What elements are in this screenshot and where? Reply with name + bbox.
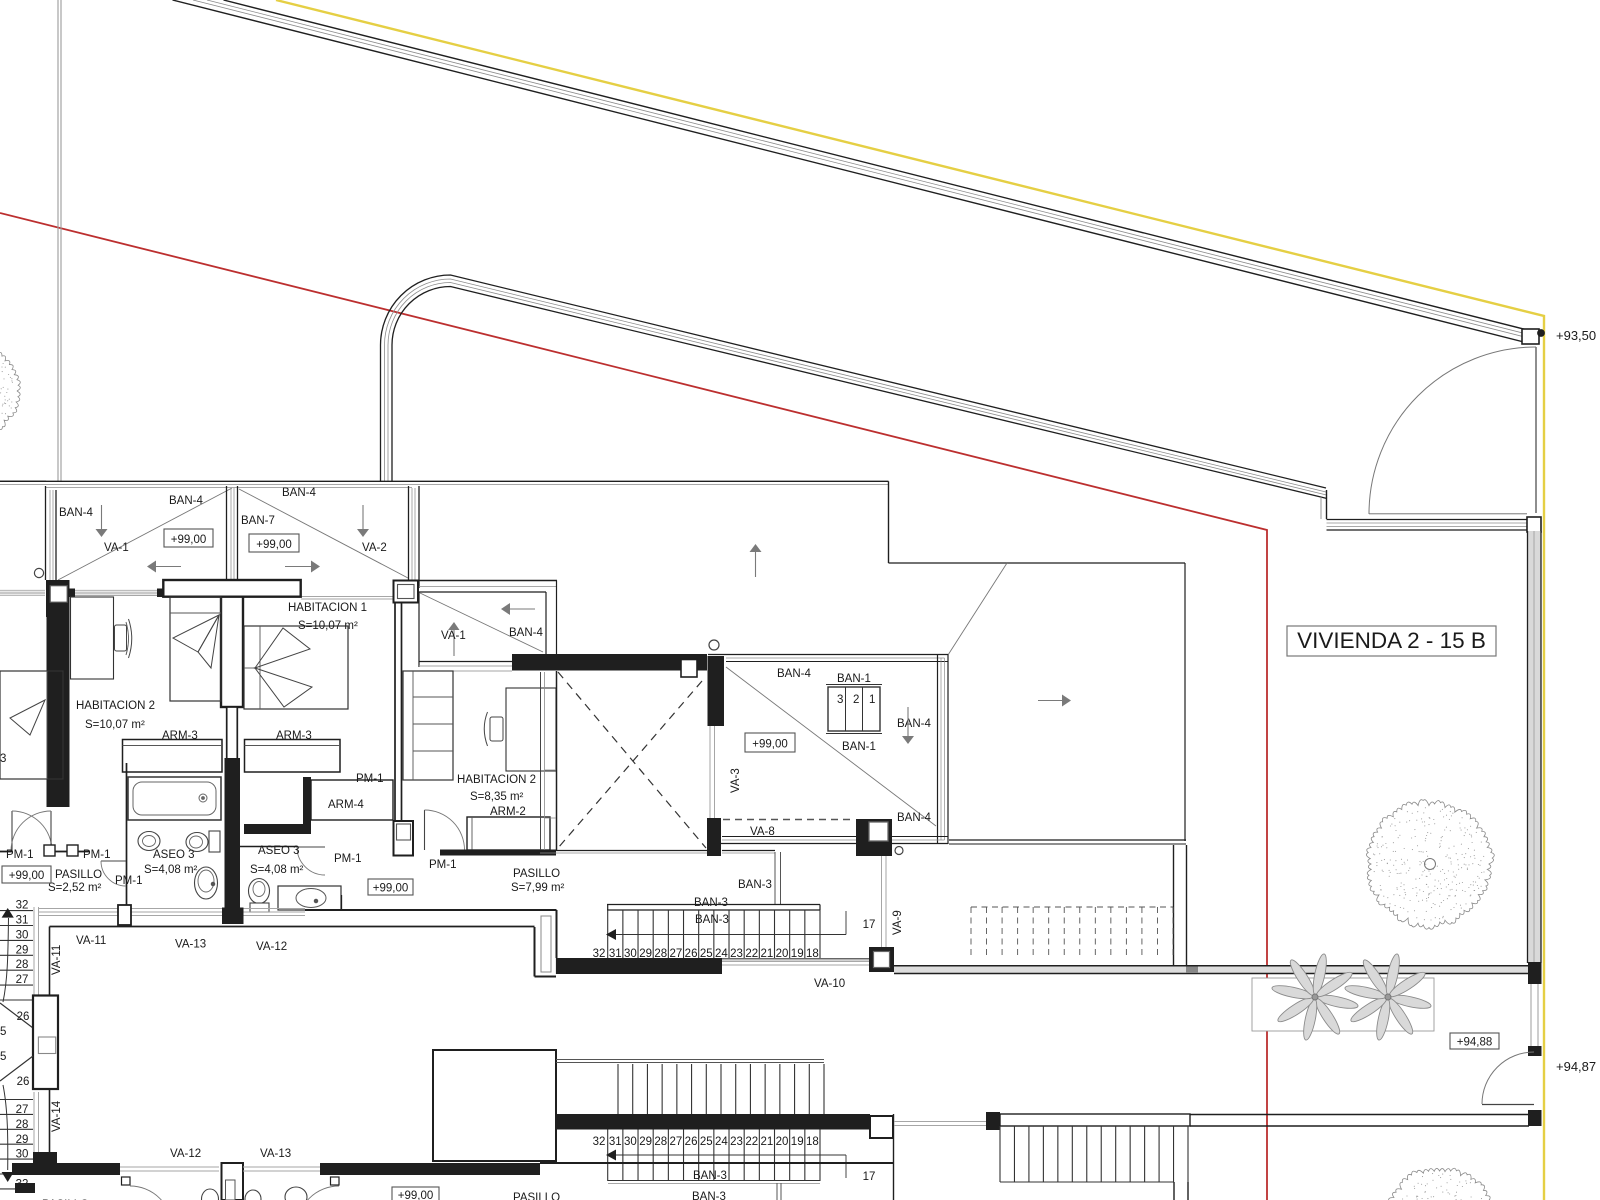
svg-text:BAN-7: BAN-7: [241, 515, 275, 527]
svg-text:5: 5: [0, 1026, 6, 1038]
svg-text:+93,50: +93,50: [1556, 328, 1596, 343]
svg-text:19: 19: [791, 948, 804, 960]
svg-text:28: 28: [654, 1136, 667, 1148]
svg-text:BAN-4: BAN-4: [897, 812, 931, 824]
svg-text:22: 22: [745, 1136, 758, 1148]
svg-text:19: 19: [791, 1136, 804, 1148]
svg-text:17: 17: [863, 919, 876, 931]
svg-text:29: 29: [16, 1134, 29, 1146]
svg-text:VIVIENDA 2 - 15 B: VIVIENDA 2 - 15 B: [1297, 628, 1486, 653]
svg-text:17: 17: [863, 1171, 876, 1183]
svg-text:PM-1: PM-1: [334, 853, 361, 865]
svg-text:VA-14: VA-14: [51, 1100, 63, 1132]
svg-text:18: 18: [806, 1136, 819, 1148]
svg-text:+99,00: +99,00: [373, 883, 409, 895]
svg-text:ARM-3: ARM-3: [162, 730, 198, 742]
svg-text:20: 20: [776, 1136, 789, 1148]
svg-text:S=4,08 m²: S=4,08 m²: [250, 864, 304, 876]
svg-text:BAN-4: BAN-4: [897, 718, 931, 730]
svg-text:27: 27: [670, 1136, 683, 1148]
svg-text:25: 25: [700, 1136, 713, 1148]
svg-text:BAN-4: BAN-4: [777, 668, 811, 680]
svg-text:BAN-3: BAN-3: [694, 897, 728, 909]
svg-text:+99,00: +99,00: [256, 539, 292, 551]
svg-text:BAN-1: BAN-1: [837, 673, 871, 685]
svg-text:29: 29: [16, 944, 29, 956]
svg-text:ARM-2: ARM-2: [490, 806, 526, 818]
svg-text:28: 28: [16, 959, 29, 971]
svg-text:PM-1: PM-1: [429, 859, 456, 871]
svg-text:VA-10: VA-10: [814, 978, 845, 990]
svg-text:20: 20: [776, 948, 789, 960]
svg-text:32: 32: [16, 900, 29, 912]
svg-text:PM-1: PM-1: [6, 849, 33, 861]
svg-text:VA-12: VA-12: [170, 1148, 201, 1160]
svg-text:23: 23: [730, 1136, 743, 1148]
svg-text:32: 32: [593, 1136, 606, 1148]
svg-text:30: 30: [16, 1149, 29, 1161]
svg-text:VA-11: VA-11: [76, 935, 106, 947]
svg-text:VA-8: VA-8: [750, 826, 775, 838]
svg-text:VA-13: VA-13: [260, 1148, 291, 1160]
svg-text:PASILLO: PASILLO: [55, 869, 102, 881]
svg-text:27: 27: [16, 1104, 29, 1116]
svg-text:+99,00: +99,00: [9, 870, 45, 882]
svg-text:S=4,08 m²: S=4,08 m²: [144, 864, 198, 876]
svg-text:S=10,07 m²: S=10,07 m²: [298, 620, 358, 632]
svg-text:31: 31: [609, 1136, 622, 1148]
svg-text:VA-1: VA-1: [104, 542, 129, 554]
svg-text:HABITACION 2: HABITACION 2: [457, 774, 536, 786]
svg-text:BAN-4: BAN-4: [59, 507, 93, 519]
svg-text:24: 24: [715, 1136, 728, 1148]
svg-text:3: 3: [0, 753, 6, 765]
svg-text:ASEO 3: ASEO 3: [153, 849, 195, 861]
svg-text:+94,87: +94,87: [1556, 1059, 1596, 1074]
svg-text:BAN-3: BAN-3: [693, 1170, 727, 1182]
svg-text:+99,00: +99,00: [398, 1190, 434, 1200]
svg-text:HABITACION 2: HABITACION 2: [76, 700, 155, 712]
svg-text:BAN-3: BAN-3: [695, 914, 729, 926]
svg-text:29: 29: [639, 1136, 652, 1148]
svg-text:28: 28: [16, 1119, 29, 1131]
svg-text:+99,00: +99,00: [171, 534, 207, 546]
svg-text:VA-3: VA-3: [730, 768, 742, 793]
svg-text:BAN-3: BAN-3: [692, 1191, 726, 1200]
svg-text:PM-1: PM-1: [83, 849, 110, 861]
svg-text:VA-13: VA-13: [175, 939, 206, 951]
svg-text:21: 21: [760, 1136, 773, 1148]
svg-text:VA-1: VA-1: [441, 630, 466, 642]
svg-text:VA-12: VA-12: [256, 941, 287, 953]
svg-text:BAN-1: BAN-1: [842, 741, 876, 753]
svg-text:BAN-3: BAN-3: [738, 879, 772, 891]
svg-text:S=7,99 m²: S=7,99 m²: [511, 882, 565, 894]
svg-text:BAN-4: BAN-4: [509, 627, 543, 639]
svg-text:18: 18: [806, 948, 819, 960]
svg-text:PASILLO: PASILLO: [513, 1192, 560, 1200]
svg-text:VA-2: VA-2: [362, 542, 387, 554]
svg-text:30: 30: [16, 929, 29, 941]
svg-text:PM-1: PM-1: [356, 773, 383, 785]
svg-text:30: 30: [624, 1136, 637, 1148]
svg-text:3: 3: [837, 694, 843, 706]
svg-text:S=2,52 m²: S=2,52 m²: [48, 882, 102, 894]
svg-text:S=8,35 m²: S=8,35 m²: [470, 791, 524, 803]
svg-text:21: 21: [760, 948, 773, 960]
svg-text:+94,88: +94,88: [1457, 1037, 1493, 1049]
svg-text:+99,00: +99,00: [752, 739, 788, 751]
svg-text:27: 27: [16, 974, 29, 986]
svg-text:2: 2: [853, 694, 859, 706]
svg-text:26: 26: [17, 1076, 30, 1088]
svg-text:VA-11: VA-11: [51, 945, 63, 975]
svg-text:S=10,07 m²: S=10,07 m²: [85, 719, 145, 731]
svg-text:HABITACION 1: HABITACION 1: [288, 602, 367, 614]
svg-text:5: 5: [0, 1051, 6, 1063]
svg-text:BAN-4: BAN-4: [169, 495, 203, 507]
svg-text:VA-9: VA-9: [892, 910, 904, 935]
svg-text:22: 22: [745, 948, 758, 960]
svg-text:1: 1: [869, 694, 875, 706]
svg-text:BAN-4: BAN-4: [282, 487, 316, 499]
svg-text:31: 31: [16, 915, 29, 927]
svg-text:23: 23: [730, 948, 743, 960]
svg-text:PM-1: PM-1: [115, 875, 142, 887]
svg-text:ASEO 3: ASEO 3: [258, 845, 300, 857]
svg-text:ARM-3: ARM-3: [276, 730, 312, 742]
svg-text:26: 26: [685, 1136, 698, 1148]
svg-text:ARM-4: ARM-4: [328, 799, 364, 811]
svg-text:PASILLO: PASILLO: [513, 868, 560, 880]
